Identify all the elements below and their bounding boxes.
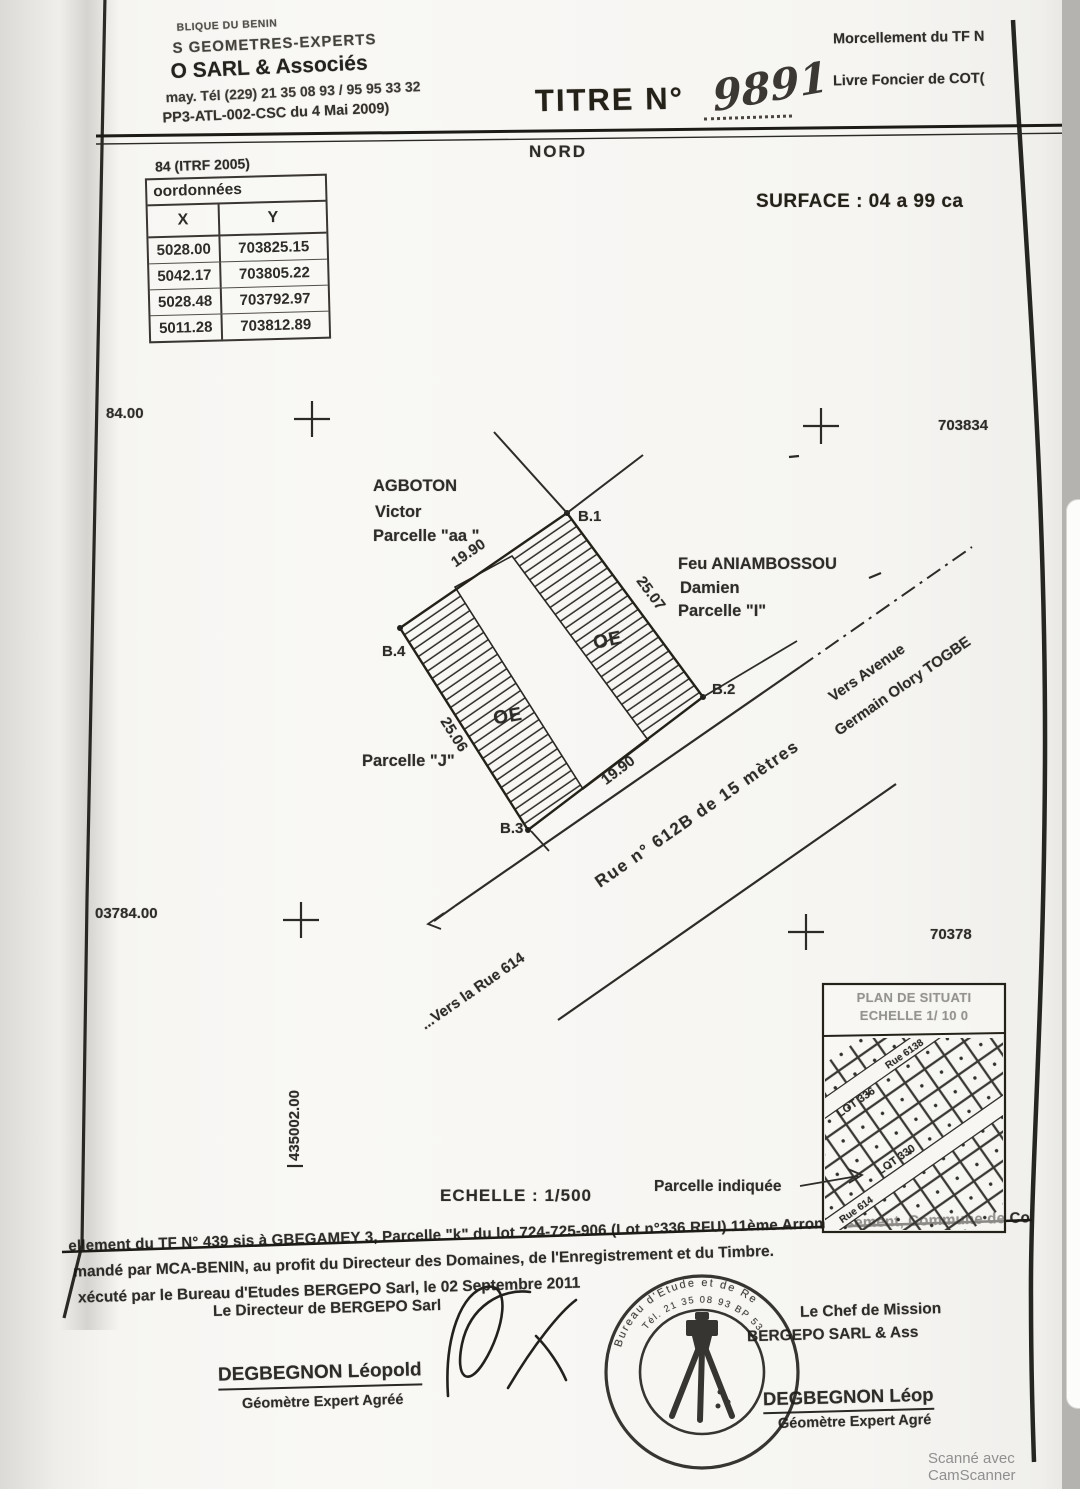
director-signature bbox=[447, 1287, 576, 1396]
road-name-vers-rue-614: ...Vers la Rue 614 bbox=[418, 949, 529, 1033]
surveyor-stamp: Bureau d'Etude et de Re Tél. 21 35 08 93… bbox=[0, 0, 798, 1468]
road-arrowhead bbox=[428, 913, 444, 929]
grid-cross-marks bbox=[283, 401, 881, 1166]
scroll-indicator[interactable] bbox=[1066, 499, 1080, 1409]
survey-plan-linework: 19.90 25.07 25.06 19.90 OE OE Rue n° 612… bbox=[0, 0, 1080, 1489]
scanned-land-title-document: BLIQUE DU BENIN S GEOMETRES-EXPERTS O SA… bbox=[0, 0, 1080, 1489]
camscanner-watermark: Scanné avec CamScanner bbox=[928, 1450, 1080, 1484]
measure-nw: 19.90 bbox=[448, 536, 489, 571]
grid-label-vertical: 435002.00 bbox=[286, 1090, 303, 1161]
theodolite-icon bbox=[672, 1312, 732, 1420]
parcel-hatched-strips bbox=[400, 513, 703, 830]
page-right-border bbox=[1013, 20, 1045, 1462]
page-fold-line bbox=[64, 0, 105, 1318]
